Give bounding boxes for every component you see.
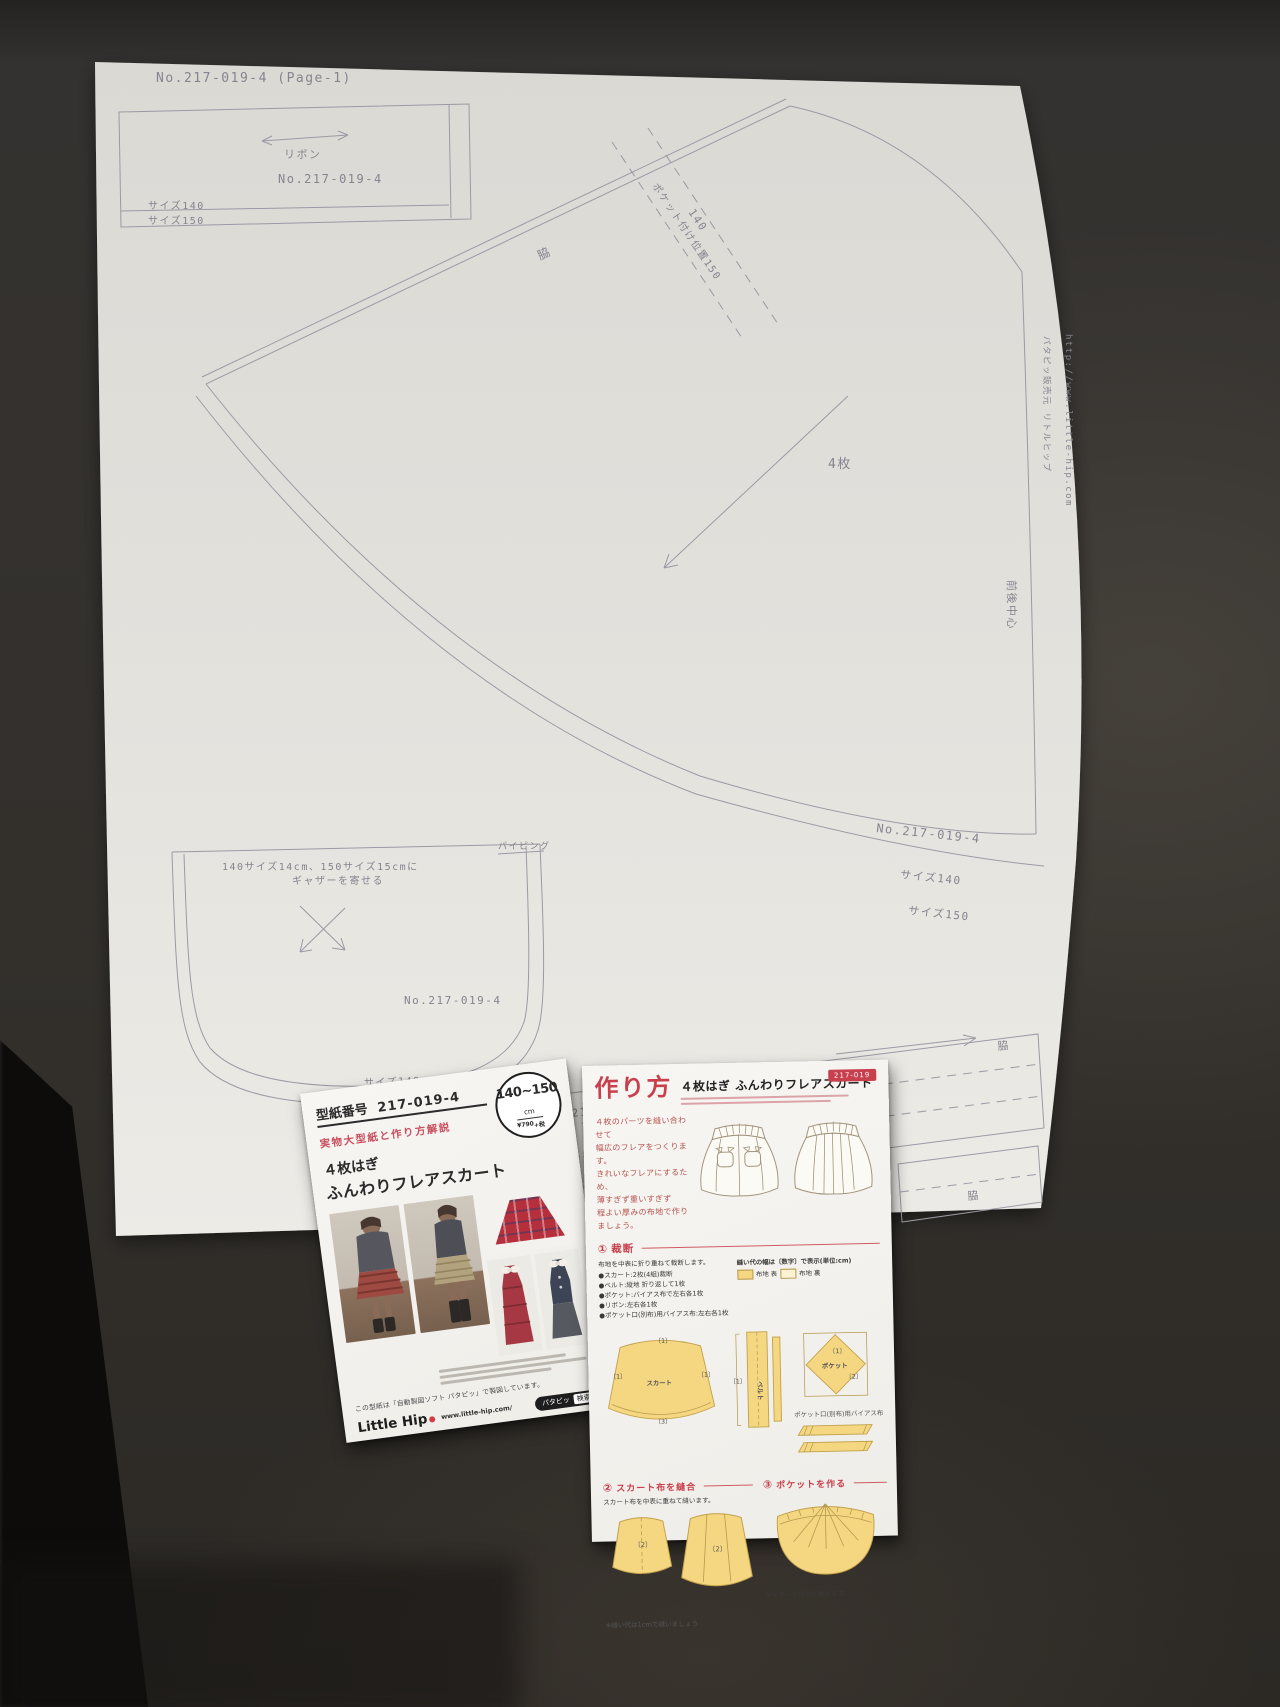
waistband-side-right: 脇 (997, 1039, 1011, 1053)
svg-text:〔1〕: 〔1〕 (610, 1372, 627, 1380)
svg-text:〔2〕: 〔2〕 (634, 1541, 652, 1549)
section2: ② スカート布を縫合 スカート布を中表に重ねて縫います。 〔2〕 〔2〕 (603, 1478, 756, 1614)
ribbon-number: No.217-019-4 (278, 172, 383, 186)
instr-title: 作り方 (594, 1075, 672, 1101)
svg-text:〔1〕: 〔1〕 (729, 1377, 746, 1385)
svg-text:〔3〕: 〔3〕 (654, 1417, 671, 1425)
photo-flat-skirt (478, 1182, 577, 1256)
section3: ③ ポケットを作る ギャザーを均等に寄せます。 (763, 1476, 890, 1612)
skirt-front-illustration (693, 1113, 785, 1203)
section1-header: ① 裁断 (598, 1235, 880, 1256)
brand-logo: Little Hip (357, 1410, 437, 1436)
section1-bullets: 布地を中表に折り重ねて裁断します。 ●スカート:2枚(4組)裁断 ●ベルト:縦地… (598, 1258, 732, 1322)
badge-tax: +税 (534, 1121, 546, 1129)
skirt-publisher-vertical: パタピッ販売元 リトルヒップ (1041, 336, 1052, 473)
svg-text:ポケット: ポケット (822, 1361, 848, 1371)
badge-unit: cm (516, 1106, 544, 1120)
pocket-number: No.217-019-4 (404, 994, 501, 1007)
belt-diagram: 〔1〕 ベルト (726, 1322, 787, 1439)
pocket-gather-note-1: 140サイズ14cm、150サイズ15cmに (222, 860, 419, 873)
paper (95, 62, 1082, 1236)
svg-text:スカート: スカート (646, 1379, 672, 1388)
photo-child-side (403, 1195, 490, 1333)
photo-pinafore-navy (534, 1249, 590, 1350)
pattern-no-label: 型紙番号 (315, 1102, 369, 1124)
sheet-page-header: No.217-019-4 (Page-1) (156, 71, 352, 86)
photo-scene: No.217-019-4 (Page-1) リボン No.217-019-4 サ… (0, 0, 1280, 1707)
brand-url: www.little-hip.com/ (441, 1404, 513, 1421)
search-brand: パタピッ (541, 1395, 570, 1409)
pattern-no-value: 217-019-4 (377, 1090, 461, 1116)
instr-number-badge: 217-019 (828, 1069, 876, 1082)
skirt-illustrations (693, 1111, 879, 1231)
pocket-gather-note-2: ギャザーを寄せる (292, 874, 384, 887)
svg-text:〔1〕: 〔1〕 (697, 1371, 714, 1379)
svg-text:〔1〕: 〔1〕 (655, 1337, 672, 1345)
ribbon-size140: サイズ140 (148, 199, 205, 212)
badge-size: 140~150 (495, 1080, 558, 1103)
ribbon-label: リボン (284, 148, 322, 161)
front-photos (329, 1182, 590, 1376)
svg-text:〔2〕: 〔2〕 (845, 1372, 862, 1380)
cutting-diagrams: 〔1〕 〔1〕 〔1〕 〔3〕 スカート 〔1〕 ベルト 〔1〕 〔2〕 ポケッ… (599, 1320, 884, 1476)
ribbon-size150: サイズ150 (148, 214, 205, 227)
photo-child-back (329, 1205, 416, 1343)
svg-text:ベルト: ベルト (756, 1381, 764, 1400)
brand-dot-icon (429, 1416, 436, 1423)
instr-intro-text: ４枚のパーツを縫い合わせて 幅広のフレアをつくります。 きれいなフレアにするため… (595, 1115, 691, 1234)
section1-legend: 縫い代の幅は〔数字〕で表示(単位:cm) 布地 表 布地 裏 (737, 1254, 882, 1318)
svg-text:ポケット口(別布)用バイアス布: ポケット口(別布)用バイアス布 (794, 1408, 884, 1419)
photo-pinafore-red (487, 1255, 543, 1356)
badge-price: ¥790 (517, 1120, 534, 1129)
skirt-quantity-label: 4枚 (828, 457, 852, 472)
fabric-back-swatch (780, 1268, 796, 1278)
svg-text:〔2〕: 〔2〕 (709, 1545, 727, 1553)
front-leaflet: 型紙番号217-019-4 140~150 cm ¥790+税 実物大型紙と作り… (300, 1059, 612, 1443)
pocket-piping-label: パイピング (498, 840, 551, 852)
pocket-gather-diagram (763, 1489, 889, 1584)
skirt-panel-diagram: 〔1〕 〔1〕 〔1〕 〔3〕 スカート (599, 1323, 722, 1442)
skirt-back-illustration (787, 1111, 879, 1201)
instruction-leaflet: 作り方 ４枚はぎ ふんわりフレアスカート 217-019 ４枚のパーツを縫い合わ… (582, 1060, 898, 1542)
fabric-front-swatch (737, 1269, 753, 1279)
skirt-center-label: 前後中心 (1005, 580, 1019, 630)
svg-text:〔1〕: 〔1〕 (829, 1347, 846, 1355)
skirt-url-vertical: http://www.little-hip.com (1063, 334, 1073, 507)
waistband-side-bottom: 脇 (967, 1189, 981, 1203)
pocket-diagram: 〔1〕 〔2〕 ポケット ポケット口(別布)用バイアス布 (791, 1320, 885, 1472)
sew-panels-diagram: 〔2〕 〔2〕 (603, 1503, 755, 1610)
tartan-skirt-shape (487, 1191, 569, 1249)
instr-subtext-bar2 (681, 1100, 831, 1105)
